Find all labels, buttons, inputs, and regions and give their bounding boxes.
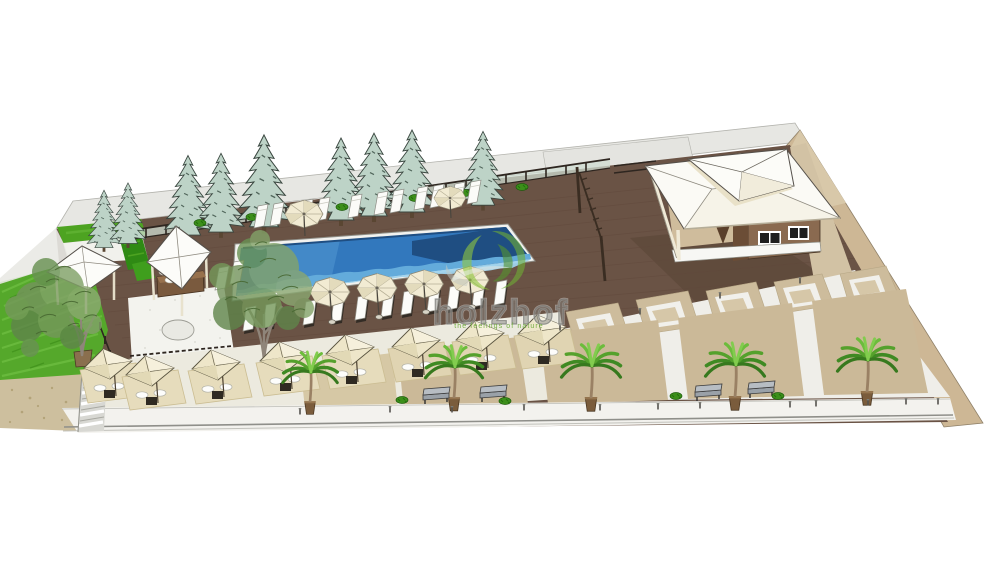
svg-text:the feelings of nature: the feelings of nature xyxy=(454,323,544,330)
